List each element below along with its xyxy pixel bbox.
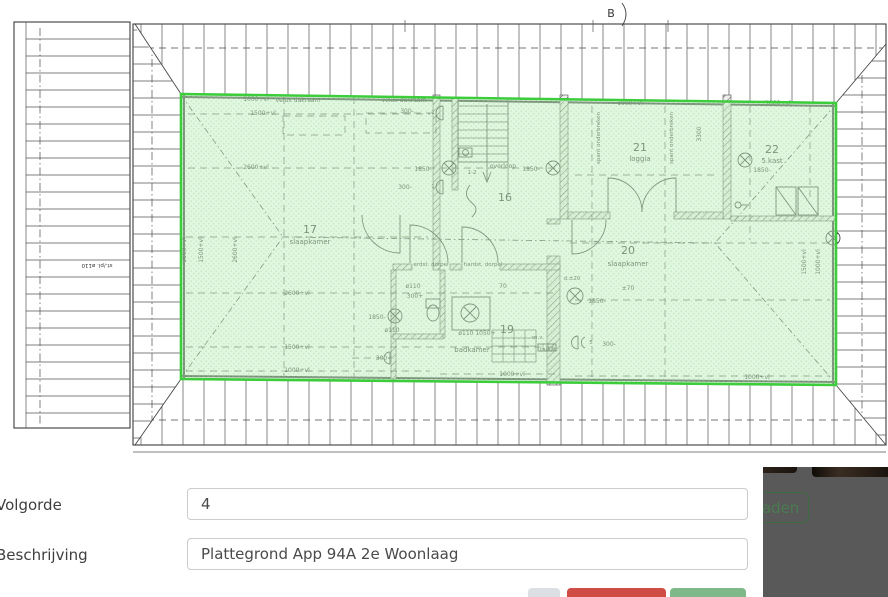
photo-thumbnail [763, 467, 797, 473]
floorplan-svg: B1000+vlvelux dakraamvelux dakraam1000+v… [0, 0, 888, 467]
neutral-button[interactable] [528, 588, 560, 597]
delete-button[interactable] [567, 588, 666, 597]
photo-thumbnail [812, 467, 888, 477]
downloaden-button-clipped[interactable]: oaden [763, 492, 809, 523]
save-button[interactable] [670, 588, 746, 597]
floorplan-image: B1000+vlvelux dakraamvelux dakraam1000+v… [0, 0, 888, 467]
plan-label: B [607, 7, 615, 20]
beschrijving-label: Beschrijving [0, 546, 88, 564]
beschrijving-input[interactable] [187, 538, 748, 570]
volgorde-input[interactable] [187, 488, 748, 520]
screen: B1000+vlvelux dakraamvelux dakraam1000+v… [0, 0, 888, 597]
highlight-region [181, 94, 836, 385]
roof-section-left [14, 22, 130, 428]
volgorde-label: Volgorde [0, 496, 62, 514]
section-mark-curve [622, 3, 626, 26]
dimmed-backdrop: oaden [763, 467, 888, 597]
plan-label: st./pl. ø110 [81, 262, 113, 268]
